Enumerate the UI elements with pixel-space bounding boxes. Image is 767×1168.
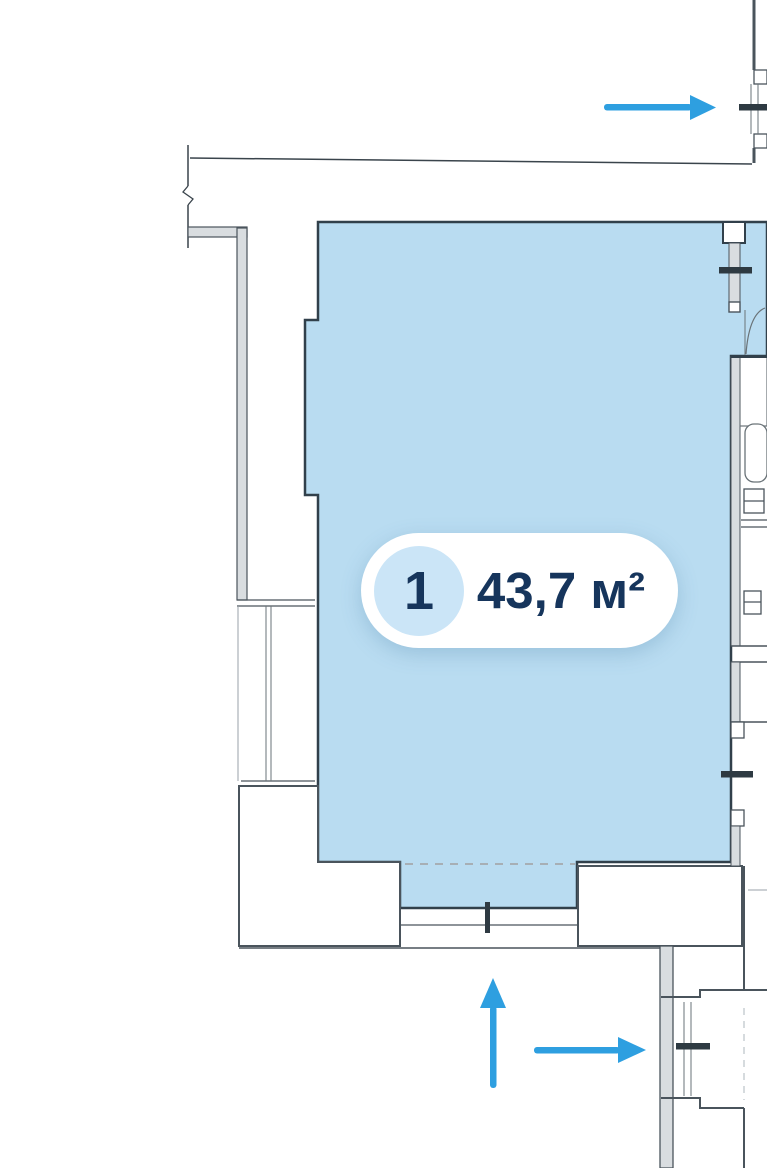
wall-double-line (741, 520, 767, 527)
unit-number: 1 (404, 564, 434, 618)
wall-edge-line (744, 866, 767, 990)
top-right-door (739, 0, 767, 163)
bottom-right-pier (578, 866, 742, 946)
window-center-tick (485, 902, 490, 933)
left-exterior-wall (188, 227, 247, 600)
door-jamb (731, 722, 744, 738)
radiator-fixture-icon (744, 489, 764, 513)
wall-band (731, 826, 740, 866)
partition-jamb (729, 302, 740, 312)
service-room (740, 357, 767, 426)
entrance-arrow-top-right-icon (604, 95, 716, 120)
unit-entrance-door-tick (676, 1043, 710, 1050)
wall-band (731, 357, 740, 646)
unit-number-circle: 1 (374, 546, 464, 636)
radiator-fixture-icon (744, 591, 761, 614)
door-tick (739, 104, 767, 111)
door-jamb (754, 70, 767, 84)
unit-badge[interactable]: 1 43,7 м² (361, 533, 678, 648)
partition-tick (719, 267, 752, 274)
toilet-fixture-icon (745, 424, 767, 482)
door-jamb (754, 134, 767, 148)
entrance-corridor (660, 946, 744, 1168)
entrance-arrow-bottom-right-icon (534, 1037, 646, 1063)
wall-cap-lines (731, 646, 767, 662)
window-glazing (266, 606, 271, 781)
unit-area-label: 43,7 м² (464, 565, 658, 616)
window-sill (237, 600, 315, 787)
floorplan-canvas: 1 43,7 м² (0, 0, 767, 1168)
survey-break-icon (183, 186, 193, 205)
wall-band (731, 662, 740, 722)
partition-pier (723, 222, 745, 243)
entrance-arrow-bottom-up-icon (480, 978, 506, 1088)
corridor-wall (660, 946, 673, 1168)
door-jamb (731, 810, 744, 826)
survey-horizontal-line (190, 158, 752, 164)
left-window (237, 600, 315, 787)
door-tick (721, 771, 753, 778)
wall-vertical (237, 228, 247, 600)
